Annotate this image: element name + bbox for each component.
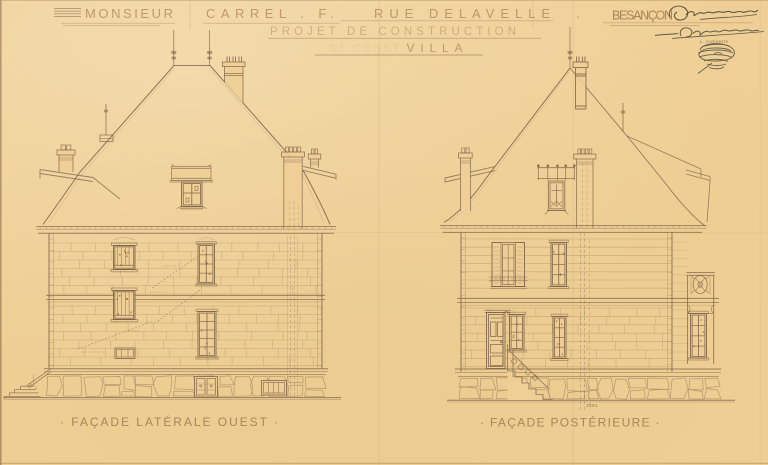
svg-text:· FAÇADE LATÉRALE OUEST ·: · FAÇADE LATÉRALE OUEST ·	[60, 414, 281, 429]
svg-text:DE CONST: DE CONST	[330, 43, 400, 54]
svg-text:· FAÇADE POSTÉRIEURE ·: · FAÇADE POSTÉRIEURE ·	[480, 415, 662, 430]
svg-text:VILLA: VILLA	[407, 41, 466, 55]
svg-text:1891: 1891	[586, 403, 598, 408]
svg-text:PROJET DE CONSTRUCTION: PROJET DE CONSTRUCTION	[270, 26, 518, 38]
svg-text:BESANÇON: BESANÇON	[612, 9, 674, 23]
svg-text:MONSIEUR: MONSIEUR	[85, 6, 175, 21]
svg-text:.: .	[576, 6, 580, 21]
